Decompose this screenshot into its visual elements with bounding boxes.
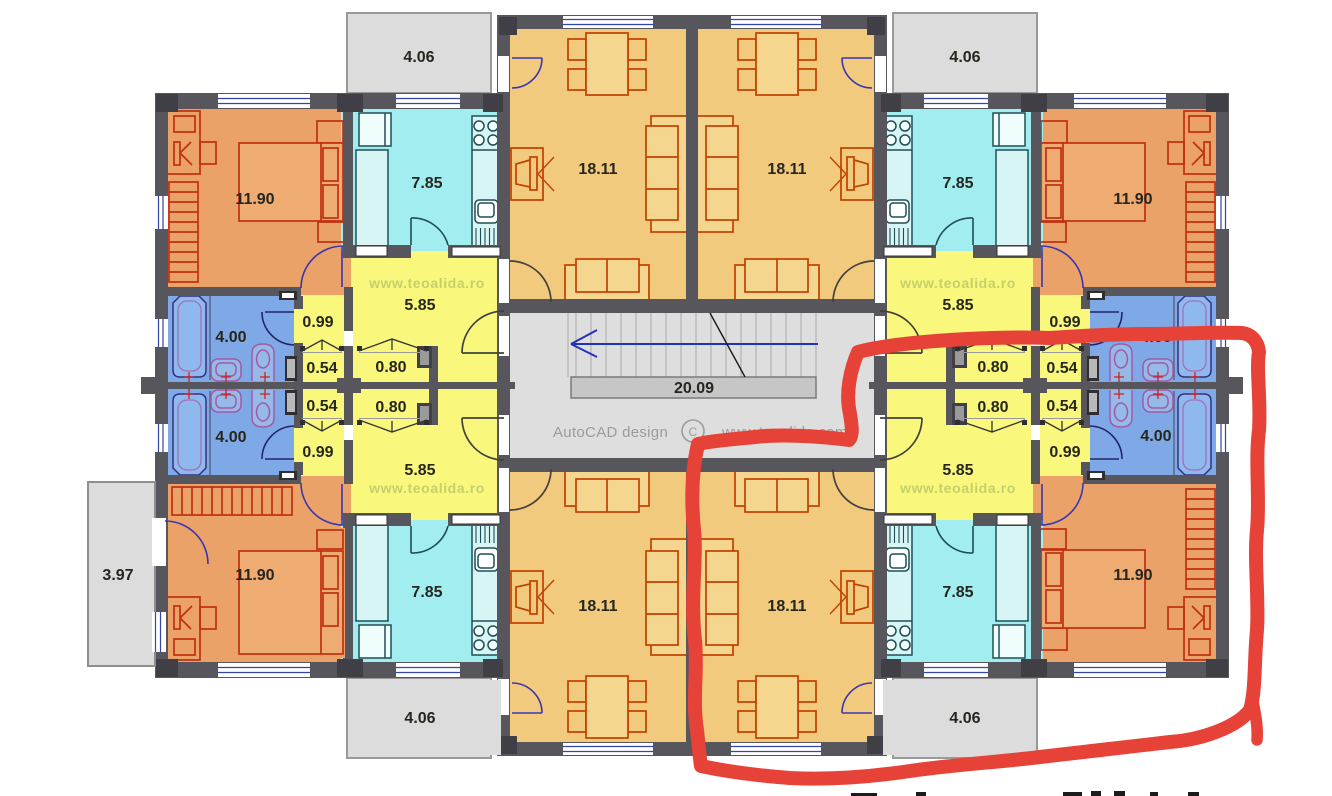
svg-text:4.06: 4.06 bbox=[403, 49, 434, 66]
svg-text:5.85: 5.85 bbox=[942, 462, 973, 479]
svg-text:7.85: 7.85 bbox=[942, 175, 973, 192]
svg-text:7.85: 7.85 bbox=[411, 584, 442, 601]
svg-text:www.teoalida.ro: www.teoalida.ro bbox=[368, 480, 485, 496]
svg-text:5.85: 5.85 bbox=[404, 462, 435, 479]
svg-text:www.teoalida.ro: www.teoalida.ro bbox=[899, 275, 1016, 291]
svg-text:20.09: 20.09 bbox=[674, 380, 714, 397]
svg-text:18.11: 18.11 bbox=[578, 161, 617, 178]
svg-text:4.00: 4.00 bbox=[1140, 428, 1171, 445]
svg-text:C: C bbox=[689, 425, 698, 439]
svg-text:4.00: 4.00 bbox=[215, 329, 246, 346]
svg-text:7.85: 7.85 bbox=[942, 584, 973, 601]
svg-text:18.11: 18.11 bbox=[767, 598, 806, 615]
svg-text:18.11: 18.11 bbox=[578, 598, 617, 615]
svg-text:18.11: 18.11 bbox=[767, 161, 806, 178]
svg-text:0.80: 0.80 bbox=[375, 399, 406, 416]
svg-text:4.06: 4.06 bbox=[949, 49, 980, 66]
svg-text:0.99: 0.99 bbox=[1049, 314, 1080, 331]
svg-text:0.80: 0.80 bbox=[375, 359, 406, 376]
svg-text:0.54: 0.54 bbox=[306, 360, 337, 377]
svg-text:0.54: 0.54 bbox=[306, 398, 337, 415]
svg-text:5.85: 5.85 bbox=[942, 297, 973, 314]
svg-text:0.54: 0.54 bbox=[1046, 398, 1077, 415]
svg-text:0.99: 0.99 bbox=[302, 444, 333, 461]
svg-text:www.teoalida.ro: www.teoalida.ro bbox=[368, 275, 485, 291]
svg-text:5.85: 5.85 bbox=[404, 297, 435, 314]
svg-text:0.54: 0.54 bbox=[1046, 360, 1077, 377]
svg-text:AutoCAD design: AutoCAD design bbox=[553, 424, 668, 441]
svg-text:11.90: 11.90 bbox=[235, 567, 274, 584]
svg-text:4.06: 4.06 bbox=[949, 710, 980, 727]
svg-text:4.00: 4.00 bbox=[215, 429, 246, 446]
svg-text:www.teoalida.ro: www.teoalida.ro bbox=[899, 480, 1016, 496]
svg-text:11.90: 11.90 bbox=[1113, 191, 1152, 208]
svg-text:0.80: 0.80 bbox=[977, 359, 1008, 376]
svg-text:4.06: 4.06 bbox=[404, 710, 435, 727]
svg-text:0.99: 0.99 bbox=[1049, 444, 1080, 461]
svg-text:7.85: 7.85 bbox=[411, 175, 442, 192]
svg-text:11.90: 11.90 bbox=[235, 191, 274, 208]
svg-text:0.99: 0.99 bbox=[302, 314, 333, 331]
svg-text:3.97: 3.97 bbox=[102, 567, 133, 584]
svg-text:0.80: 0.80 bbox=[977, 399, 1008, 416]
svg-text:11.90: 11.90 bbox=[1113, 567, 1152, 584]
